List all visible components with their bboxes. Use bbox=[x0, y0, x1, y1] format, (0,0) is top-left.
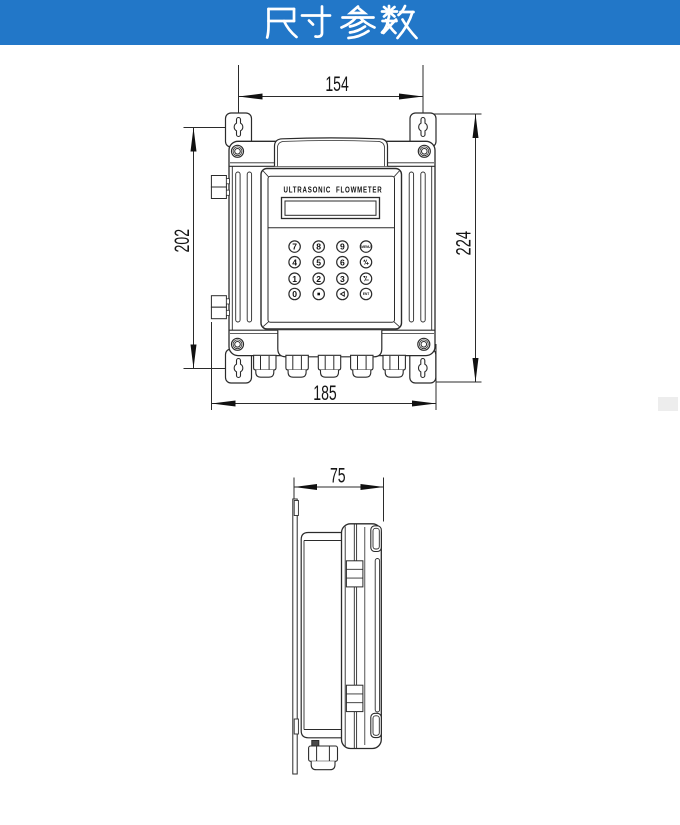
svg-text:3: 3 bbox=[340, 274, 345, 284]
svg-text:0: 0 bbox=[292, 289, 297, 299]
svg-text:1: 1 bbox=[292, 274, 297, 284]
svg-text:ENT: ENT bbox=[363, 292, 369, 296]
svg-text:75: 75 bbox=[330, 464, 346, 487]
svg-text:2: 2 bbox=[316, 274, 321, 284]
svg-text:224: 224 bbox=[453, 231, 476, 256]
svg-text:202: 202 bbox=[171, 229, 194, 253]
svg-text:6: 6 bbox=[340, 257, 345, 267]
svg-text:7: 7 bbox=[292, 242, 297, 252]
svg-text:8: 8 bbox=[316, 242, 321, 252]
svg-text:154: 154 bbox=[325, 73, 349, 96]
svg-text:5: 5 bbox=[316, 257, 321, 267]
svg-text:4: 4 bbox=[292, 257, 297, 267]
svg-text:9: 9 bbox=[340, 242, 345, 252]
svg-text:185: 185 bbox=[313, 382, 337, 405]
svg-text:MENU: MENU bbox=[361, 245, 371, 249]
svg-text:ULTRASONIC FLOWMETER: ULTRASONIC FLOWMETER bbox=[284, 185, 383, 194]
